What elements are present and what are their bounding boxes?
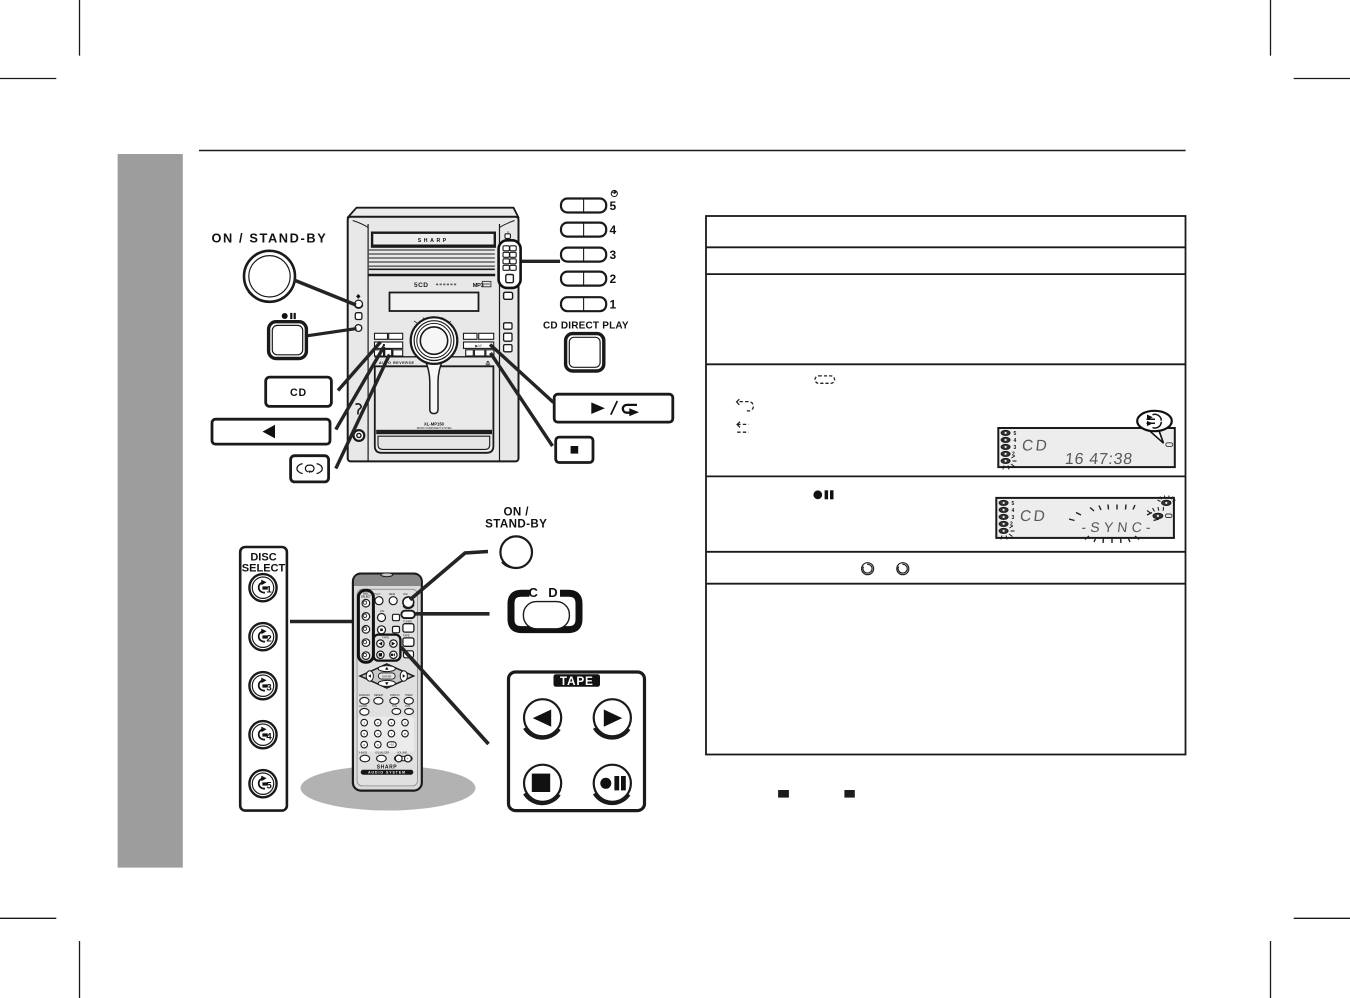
svg-text:CD: CD [290, 387, 307, 399]
svg-text:4: 4 [1012, 508, 1015, 514]
svg-text:RANDOM: RANDOM [359, 694, 370, 697]
svg-text:CLOCK: CLOCK [359, 705, 368, 708]
svg-text:5: 5 [1012, 501, 1015, 507]
svg-text:-SYNC-: -SYNC- [1081, 519, 1156, 535]
svg-text:▶/↺: ▶/↺ [475, 344, 482, 348]
svg-text:5CD: 5CD [414, 282, 428, 289]
svg-text:5: 5 [1014, 431, 1017, 437]
svg-text:3: 3 [610, 248, 617, 262]
svg-text:REPEAT: REPEAT [374, 694, 384, 697]
svg-text:ON /: ON / [503, 505, 529, 518]
svg-text:CD: CD [1019, 508, 1048, 525]
svg-text:DISPLAY: DISPLAY [390, 694, 400, 697]
svg-text:TUN: TUN [405, 705, 410, 708]
svg-text:4: 4 [610, 223, 617, 237]
svg-text:3: 3 [1014, 445, 1017, 451]
svg-text:X-BASS: X-BASS [359, 752, 368, 755]
svg-text:VOLUME: VOLUME [397, 752, 408, 755]
svg-text:PLAY: PLAY [374, 592, 381, 596]
svg-text:ENTER: ENTER [382, 675, 391, 679]
svg-text:4: 4 [1014, 438, 1017, 444]
svg-text:SHARP: SHARP [377, 764, 398, 770]
svg-text:16 47:38: 16 47:38 [1064, 450, 1134, 468]
svg-text:ON/: ON/ [403, 592, 408, 596]
svg-text:TUN: TUN [392, 705, 397, 708]
svg-text:CD: CD [1021, 437, 1050, 454]
svg-text:AUDIO SYSTEM: AUDIO SYSTEM [368, 771, 406, 775]
svg-text:2: 2 [266, 634, 271, 645]
svg-text:C D: C D [529, 585, 562, 600]
svg-text:TAPE: TAPE [403, 634, 410, 638]
svg-text:TIMER: TIMER [405, 694, 413, 697]
svg-text:4: 4 [266, 732, 272, 743]
svg-text:3: 3 [266, 683, 271, 694]
svg-text:TUNER: TUNER [403, 619, 412, 623]
svg-text:3: 3 [1012, 515, 1015, 521]
svg-text:EQUALIZER: EQUALIZER [376, 752, 390, 755]
svg-text:1: 1 [610, 298, 617, 312]
svg-text:1: 1 [266, 585, 272, 596]
svg-text:+10: +10 [389, 743, 394, 747]
svg-text:SELECT: SELECT [361, 595, 371, 598]
svg-text:TAPE: TAPE [560, 674, 594, 688]
svg-text:ON / STAND-BY: ON / STAND-BY [212, 230, 328, 245]
svg-text:5: 5 [266, 781, 272, 792]
svg-text:+: + [407, 757, 409, 761]
svg-text:CD DIRECT PLAY: CD DIRECT PLAY [543, 320, 629, 331]
svg-text:MEM: MEM [389, 592, 395, 596]
svg-text:XL-MP150: XL-MP150 [424, 422, 445, 427]
svg-text:-: - [398, 757, 399, 761]
svg-text:2: 2 [610, 272, 617, 286]
svg-text:SHARP: SHARP [418, 238, 449, 244]
svg-text:▲: ▲ [507, 231, 510, 234]
svg-text:TAPE: TAPE [382, 636, 389, 640]
svg-text:STAND-BY: STAND-BY [485, 518, 547, 531]
svg-text:SELECT: SELECT [242, 562, 286, 574]
svg-text:5: 5 [610, 199, 617, 213]
svg-text:MICRO COMPONENT SYSTEM: MICRO COMPONENT SYSTEM [417, 427, 452, 430]
